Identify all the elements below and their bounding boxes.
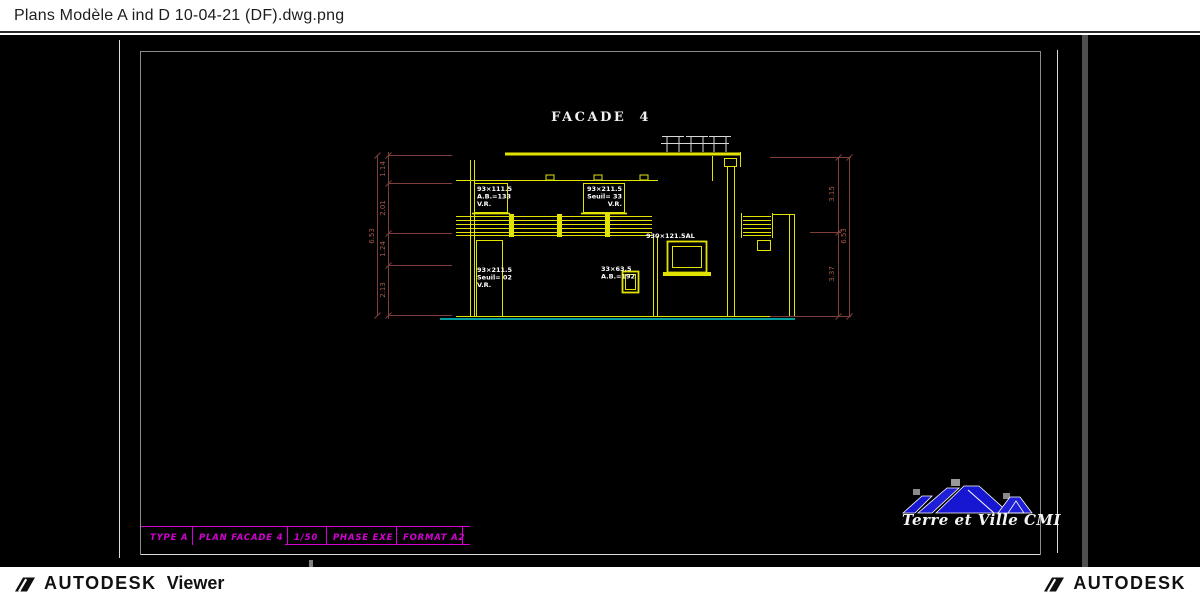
dim-left-total: 6.53 [368,228,376,244]
titleblock-format: FORMAT A2 [403,533,465,543]
svg-text:V.R.: V.R. [477,200,491,208]
dimension-chain-left: 1.14 2.01 1.24 2.13 6.53 [368,152,452,319]
autodesk-brand-right: AUTODESK [1043,573,1186,594]
dim-right-1: 3.15 [828,186,836,202]
logo-company-name: Terre et Ville CMI [902,511,1062,529]
autodesk-viewer-brand: AUTODESK Viewer [14,573,224,594]
logo-chimney [951,479,960,486]
titleblock-type: TYPE A [150,533,188,543]
autodesk-wordmark: AUTODESK [1073,573,1186,594]
autodesk-logo-icon [1043,576,1065,592]
autodesk-logo-icon [14,576,36,592]
svg-text:V.R.: V.R. [608,200,622,208]
chimney-caps [661,136,731,152]
svg-text:A.B.=192: A.B.=192 [601,273,635,281]
dim-left-1: 1.14 [379,161,387,177]
titleblock-phase: PHASE EXE [333,533,393,543]
document-title: Plans Modèle A ind D 10-04-21 (DF).dwg.p… [14,7,344,25]
label-bay-window: 930×121.5AL [646,232,695,240]
viewer-canvas[interactable]: FACADE 4 [0,35,1200,567]
viewer-label: Viewer [167,573,225,594]
facade-view-title: FACADE 4 [551,110,651,125]
titleblock-plan: PLAN FACADE 4 [199,533,283,543]
dim-left-2: 2.01 [379,200,387,216]
facade-linework [456,152,795,317]
cad-drawing: FACADE 4 [0,35,1200,567]
scrollbar-notch [309,560,313,567]
autodesk-wordmark: AUTODESK [44,573,157,594]
dimension-chain-right: 3.15 3.37 6.53 [770,155,853,320]
footer-bar: AUTODESK Viewer AUTODESK [0,567,1200,600]
titleblock-scale: 1/50 [294,533,318,543]
title-block: TYPE A PLAN FACADE 4 1/50 PHASE EXE FORM… [141,527,470,546]
dim-left-3: 1.24 [379,241,387,257]
dim-right-2: 3.37 [828,266,836,282]
title-bar: Plans Modèle A ind D 10-04-21 (DF).dwg.p… [0,0,1200,33]
scrollbar[interactable] [1082,35,1088,567]
dim-left-4: 2.13 [379,282,387,298]
svg-text:V.R.: V.R. [477,281,491,289]
company-logo: Terre et Ville CMI [902,479,1062,529]
dim-right-total: 6.53 [840,228,848,244]
